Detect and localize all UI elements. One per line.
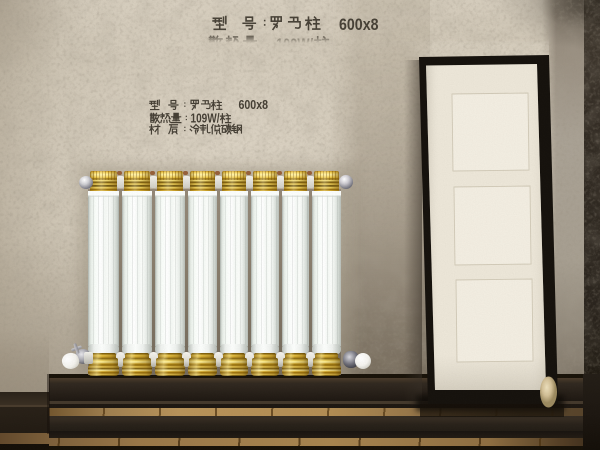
svg-text:109W/: 109W/: [191, 111, 220, 126]
svg-text:600x8: 600x8: [239, 97, 269, 112]
